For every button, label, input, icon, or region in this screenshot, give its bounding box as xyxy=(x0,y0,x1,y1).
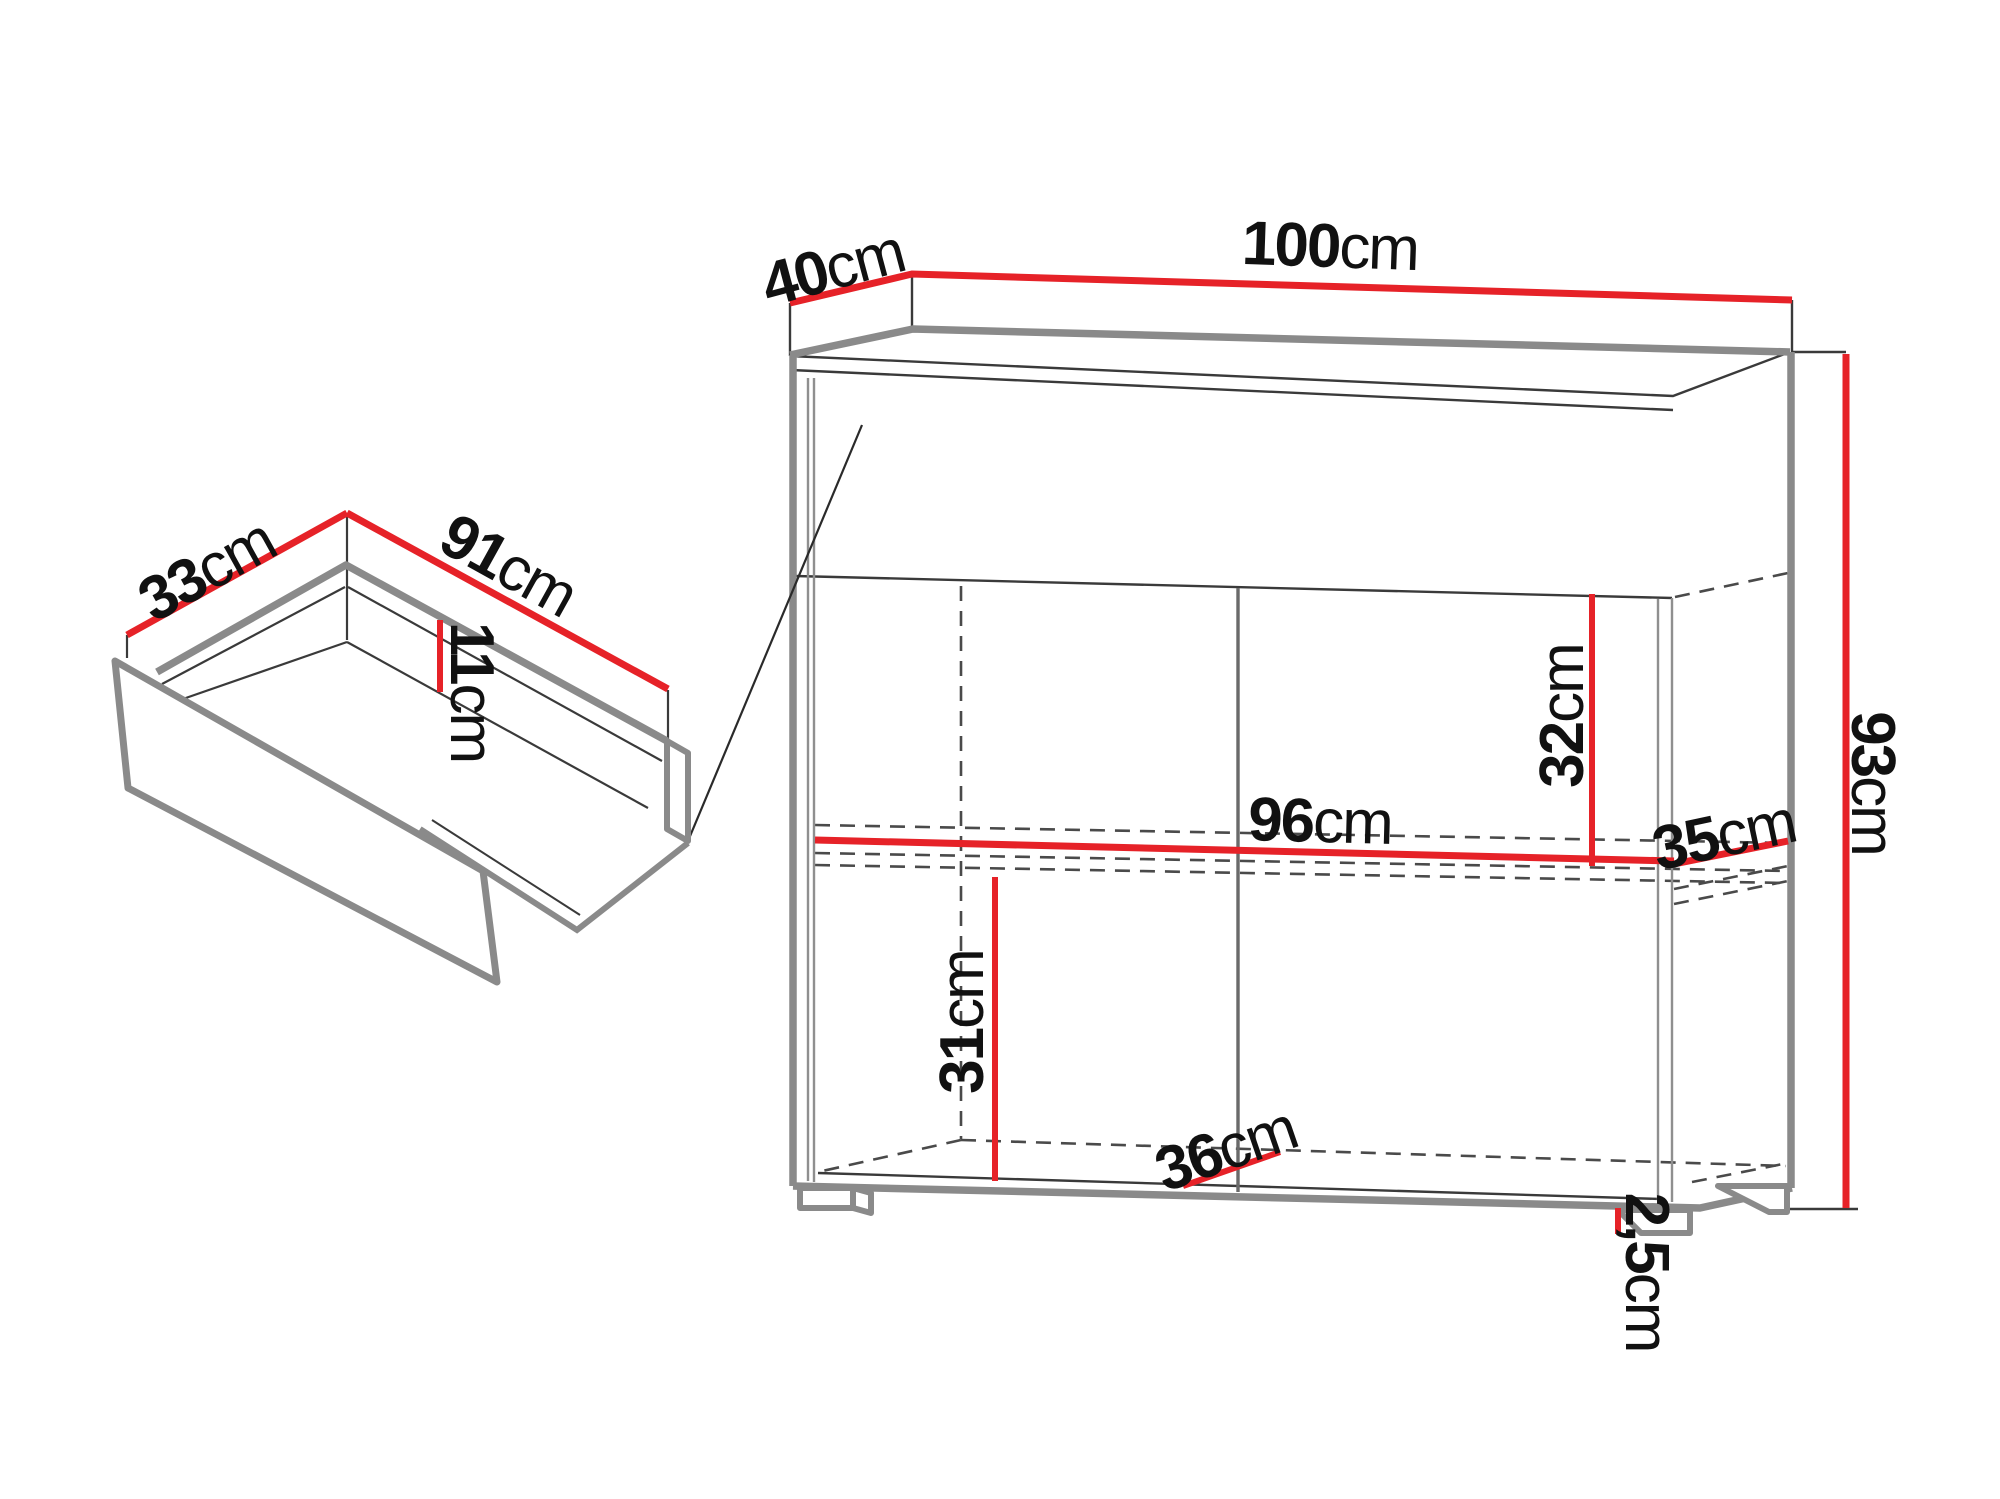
dim-label-lower-section-height: 31cm xyxy=(932,950,994,1094)
dim-line-96 xyxy=(815,840,1674,861)
dim-value: 2,5 xyxy=(1612,1193,1681,1273)
dim-label-upper-section-height: 32cm xyxy=(1532,644,1594,788)
line-art xyxy=(0,0,2000,1499)
dim-label-foot-height: 2,5cm xyxy=(1615,1193,1677,1352)
dim-unit: cm xyxy=(1612,1273,1681,1352)
drawer-side-end xyxy=(667,741,688,841)
dim-value: 93 xyxy=(1838,711,1907,776)
dim-label-cabinet-width: 100cm xyxy=(1241,213,1419,281)
dim-value: 31 xyxy=(928,1029,997,1094)
cabinet-foot-left-front xyxy=(800,1188,853,1208)
diagram-canvas: 40cm 100cm 93cm 96cm 35cm 32cm 31cm 36cm… xyxy=(0,0,2000,1499)
dim-value: 32 xyxy=(1528,723,1597,788)
dim-value: 11 xyxy=(437,622,506,684)
dim-label-drawer-inner-height: 11cm xyxy=(440,622,502,762)
dim-unit: cm xyxy=(1312,787,1392,858)
dim-unit: cm xyxy=(1338,212,1419,284)
dim-unit: cm xyxy=(1528,644,1597,723)
drawer-pointer-line xyxy=(688,425,862,841)
dim-unit: cm xyxy=(437,683,506,762)
dim-unit: cm xyxy=(1838,776,1907,855)
dim-value: 100 xyxy=(1241,209,1341,281)
cabinet-foot-left-side xyxy=(853,1188,871,1213)
dim-label-interior-width: 96cm xyxy=(1247,789,1392,855)
dim-label-cabinet-height: 93cm xyxy=(1841,711,1903,855)
dim-value: 96 xyxy=(1247,785,1314,856)
dim-unit: cm xyxy=(928,950,997,1029)
